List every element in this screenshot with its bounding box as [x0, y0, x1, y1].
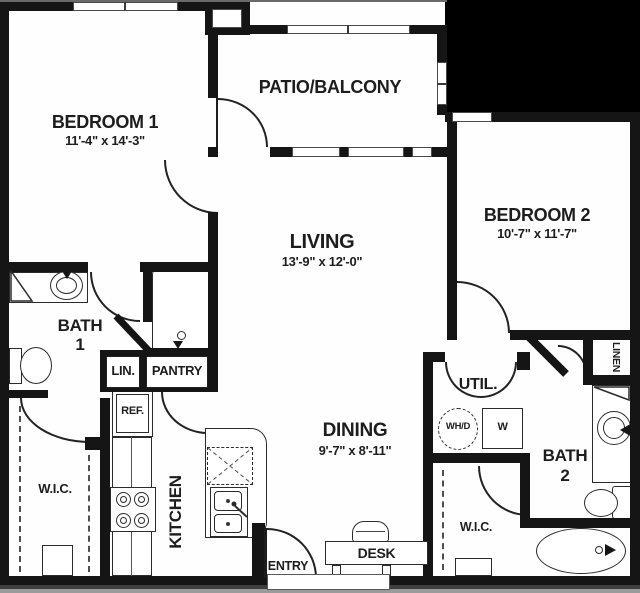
wic-right-label: W.I.C.	[444, 521, 508, 534]
bath1-toilet-bowl	[20, 347, 52, 384]
entry-label: ENTRY	[258, 560, 318, 573]
window-bedroom2-top	[452, 112, 492, 122]
wic1-closet-rod	[88, 455, 90, 572]
bedroom2-dims: 10'-7" x 11'-7"	[467, 227, 607, 241]
wall-bottom-left	[0, 576, 267, 585]
bath1-label-word: BATH	[50, 317, 110, 335]
bath1-tub-drain	[177, 331, 186, 340]
bath1-tub	[152, 265, 212, 357]
wall-right	[630, 112, 640, 585]
wic1-door-swing	[20, 398, 90, 443]
bedroom2-label: BEDROOM 2	[467, 206, 607, 225]
window-living-patio-2	[348, 147, 404, 157]
wall-util-top-left	[423, 352, 445, 362]
wall-bath1-wic	[0, 390, 48, 398]
dining-label: DINING	[300, 421, 410, 441]
wic1-bench	[42, 545, 73, 576]
stove-burner	[134, 513, 149, 528]
wall-tub2-top	[520, 518, 640, 528]
pantry-door-swing	[161, 392, 208, 434]
stove-burner	[116, 513, 131, 528]
bath2-toilet-bowl	[584, 489, 618, 517]
desk-chair-rail	[356, 531, 385, 532]
bath2-garden-tub	[536, 528, 626, 574]
bath2-tub-drain	[595, 546, 603, 554]
patio-door-leaf	[216, 98, 218, 147]
wall-left	[0, 2, 9, 585]
bath1-door-swing	[90, 272, 140, 322]
kitchen-label: KITCHEN	[167, 467, 187, 557]
desk-label: DESK	[325, 546, 428, 561]
window-mullion	[437, 83, 447, 85]
bedroom1-door-swing	[164, 160, 218, 214]
window-living-patio-1	[292, 147, 340, 157]
wic2-bench	[455, 558, 492, 576]
lin-closet-label: LIN.	[106, 364, 140, 378]
whd-label: WH/D	[438, 422, 478, 432]
entry-threshold	[267, 574, 390, 590]
wall-util-bottom	[423, 453, 530, 463]
wic1-closet-rod	[19, 406, 21, 572]
floor-plan: BEDROOM 1 11'-4" x 14'-3" PATIO/BALCONY …	[0, 0, 640, 593]
bath1-sink-basin	[56, 277, 77, 294]
wic2-closet-rod	[442, 470, 444, 570]
window-living-patio-3	[412, 147, 432, 157]
linen-label: LINEN	[601, 332, 621, 382]
wall-bed2-left	[447, 112, 457, 340]
kitchen-upper-cabinet	[207, 447, 253, 485]
window-mullion	[347, 25, 349, 34]
dining-dims: 9'-7" x 8'-11"	[295, 444, 415, 458]
wall-bed1-patio	[208, 25, 218, 98]
washer-label: W	[482, 422, 523, 434]
bedroom2-door-swing	[457, 281, 510, 333]
sink-drain	[226, 522, 230, 526]
bath2-label-num: 2	[534, 467, 596, 485]
living-dims: 13'-9" x 12'-0"	[254, 255, 390, 269]
wall-tub1-left	[143, 262, 152, 322]
wall-bottom-right	[388, 576, 640, 585]
util-label: UTIL.	[448, 377, 508, 394]
wall-util-top-right	[517, 352, 530, 370]
window-mullion	[124, 2, 126, 11]
patio-label: PATIO/BALCONY	[250, 78, 410, 97]
outside-area	[445, 0, 640, 115]
patio-door-swing	[218, 98, 268, 147]
wall-wic1-stub	[85, 437, 103, 450]
wall-bath1-top-a	[0, 262, 88, 272]
bedroom1-label: BEDROOM 1	[35, 113, 175, 132]
bath2-label-word: BATH	[534, 447, 596, 465]
refrigerator-label: REF.	[112, 406, 153, 418]
wic-left-label: W.I.C.	[25, 482, 85, 496]
bedroom1-dims: 11'-4" x 14'-3"	[35, 134, 175, 148]
bath1-label-num: 1	[50, 336, 110, 354]
stove-burner	[116, 492, 131, 507]
sink-drain	[226, 499, 230, 503]
patio-corner-inner	[212, 9, 242, 28]
living-label: LIVING	[262, 232, 382, 253]
bath2-sink-basin	[603, 417, 625, 439]
stove-burner	[134, 492, 149, 507]
pantry-label: PANTRY	[146, 364, 208, 378]
wall-wic1-kitchen	[100, 398, 110, 576]
wall-patio-bottom-jamb	[208, 147, 218, 157]
